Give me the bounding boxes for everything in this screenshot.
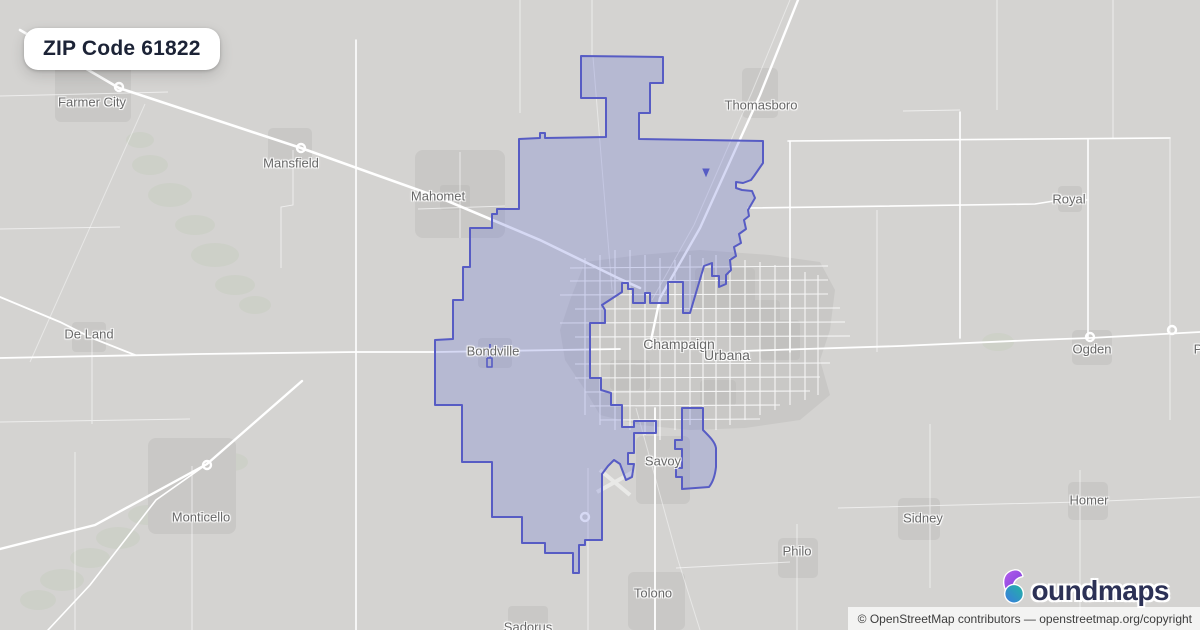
map-label-homer: Homer <box>1069 493 1108 508</box>
zip-title-badge: ZIP Code 61822 <box>24 28 220 70</box>
map-label-savoy: Savoy <box>645 454 681 469</box>
boundmaps-wordmark: oundmaps <box>1031 577 1169 605</box>
map-label-bondville: Bondville <box>467 344 520 359</box>
map-label-royal: Royal <box>1052 192 1085 207</box>
map-label-sidney: Sidney <box>903 511 943 526</box>
map-label-farmer-city: Farmer City <box>58 95 126 110</box>
map-label-mansfield: Mansfield <box>263 156 319 171</box>
attribution-bar: © OpenStreetMap contributors — openstree… <box>848 607 1200 630</box>
map-label-partial-edge: P <box>1194 342 1200 357</box>
map-canvas[interactable]: Farmer City Mansfield Mahomet Thomasboro… <box>0 0 1200 630</box>
map-label-mahomet: Mahomet <box>411 189 465 204</box>
boundmaps-b-pin-icon <box>999 568 1030 605</box>
map-label-urbana: Urbana <box>704 347 750 363</box>
map-label-sadorus: Sadorus <box>504 620 552 630</box>
boundmaps-logo: oundmaps <box>999 568 1169 605</box>
map-label-ogden: Ogden <box>1072 342 1111 357</box>
attribution-text: © OpenStreetMap contributors — openstree… <box>858 612 1192 626</box>
map-label-philo: Philo <box>783 544 812 559</box>
map-label-monticello: Monticello <box>172 510 231 525</box>
map-label-tolono: Tolono <box>634 586 672 601</box>
map-label-thomasboro: Thomasboro <box>725 98 798 113</box>
basemap-graphics <box>0 0 1200 630</box>
zip-title-text: ZIP Code 61822 <box>43 37 201 60</box>
map-label-de-land: De Land <box>64 327 113 342</box>
